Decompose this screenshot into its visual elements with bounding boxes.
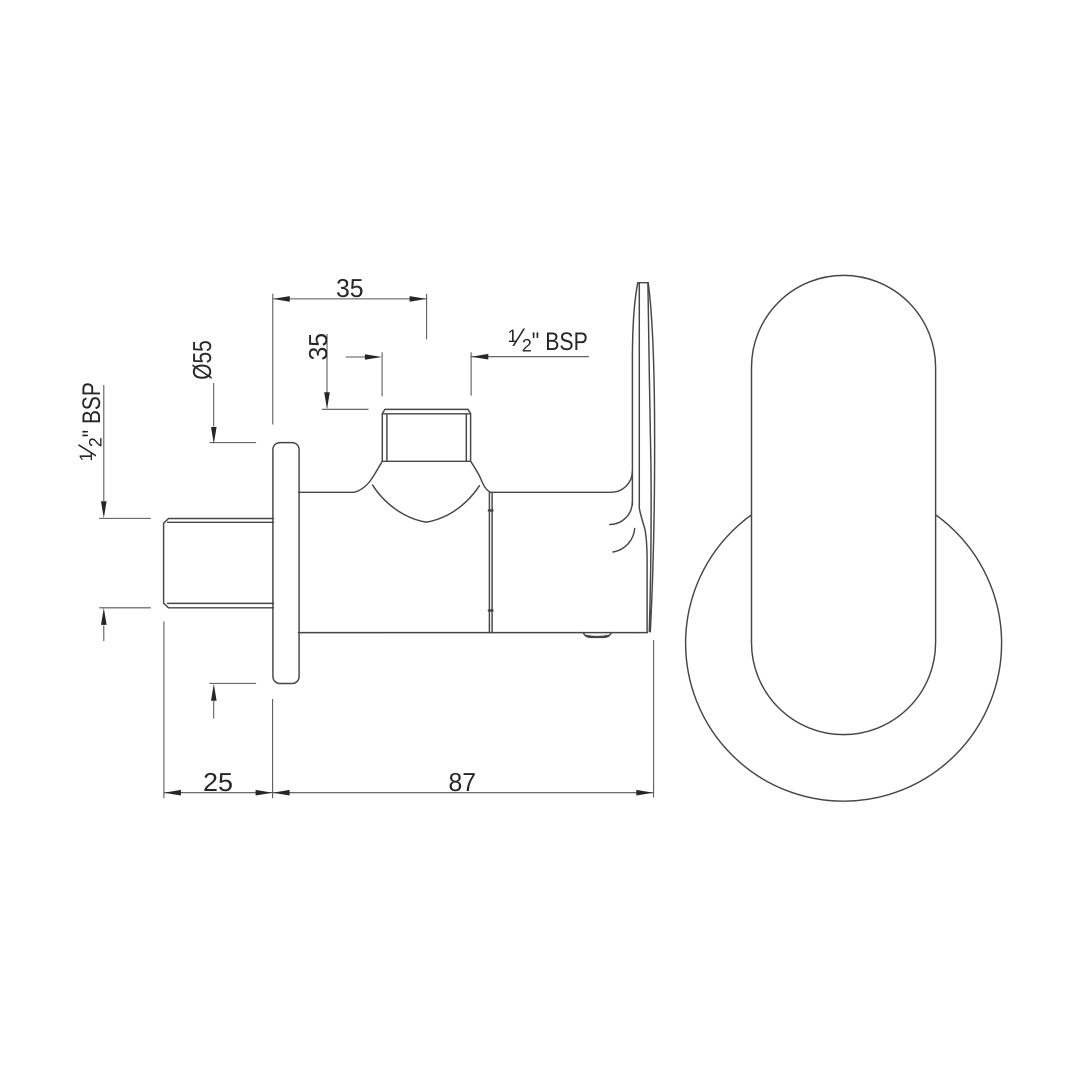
svg-text:35: 35	[336, 273, 364, 303]
svg-text:35: 35	[303, 333, 333, 361]
svg-text:1⁄2" BSP: 1⁄2" BSP	[508, 324, 588, 356]
svg-text:1⁄2" BSP: 1⁄2" BSP	[74, 382, 106, 461]
svg-text:Ø55: Ø55	[187, 340, 217, 380]
svg-text:25: 25	[203, 767, 233, 797]
svg-text:87: 87	[449, 767, 477, 797]
